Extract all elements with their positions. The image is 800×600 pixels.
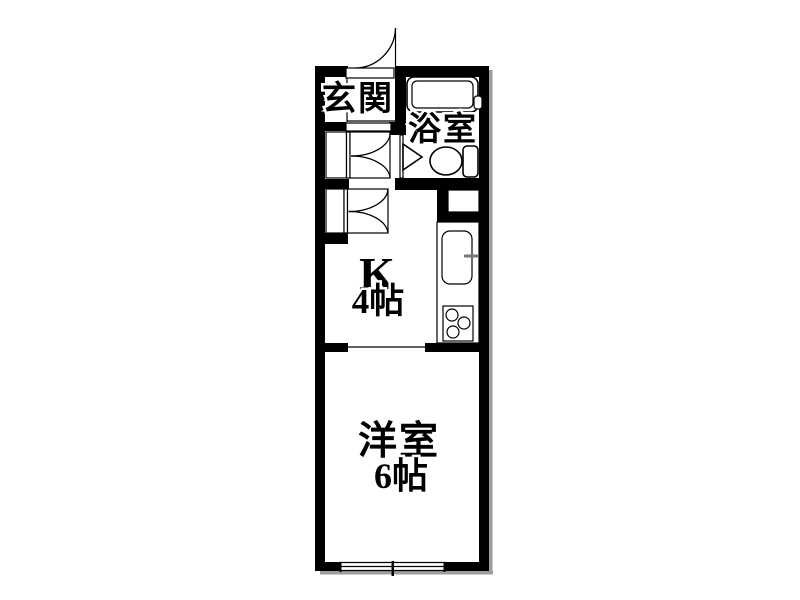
closet-double-door-upper [326,132,390,178]
floor-plan-drawing: 玄関 浴室 K 4帖 洋室 6帖 [0,0,800,600]
label-western-room-size: 6帖 [374,456,428,496]
shadow-right [489,70,493,574]
window-jamb-left [340,562,342,572]
toilet-bowl [430,147,462,175]
floor-plan-page: 玄関 浴室 K 4帖 洋室 6帖 [0,0,800,600]
entrance-threshold [346,68,394,78]
wall-k-room-divider-left [315,343,348,352]
wall-bottom-left [315,562,341,571]
label-genkan: 玄関 [322,80,394,118]
doorway-lintel [346,123,391,131]
kitchen-counter [437,222,479,343]
label-bathroom: 浴室 [408,110,478,148]
wall-left [315,66,325,571]
closet-upper-interior [326,132,347,178]
pipe-space-interior [448,190,479,212]
wall-k-room-divider-right [425,343,482,352]
wall-genkan-bottom-left [315,122,346,131]
closet-double-door-lower [326,189,388,233]
toilet-tank [463,146,478,177]
closet-upper-doorway [350,132,390,178]
bathtub-outer [407,77,478,112]
window-jamb-right [444,562,446,572]
wall-right [479,66,489,571]
closet-lower-interior [326,189,344,233]
wall-top-right [395,66,489,77]
window-center-stile [392,561,395,576]
wall-below-closets [315,233,348,244]
label-kitchen-size: 4帖 [352,282,405,321]
wall-closet-divider [315,179,349,189]
bathtub-faucet-ledge [474,96,482,109]
wall-bottom-right [444,562,489,571]
